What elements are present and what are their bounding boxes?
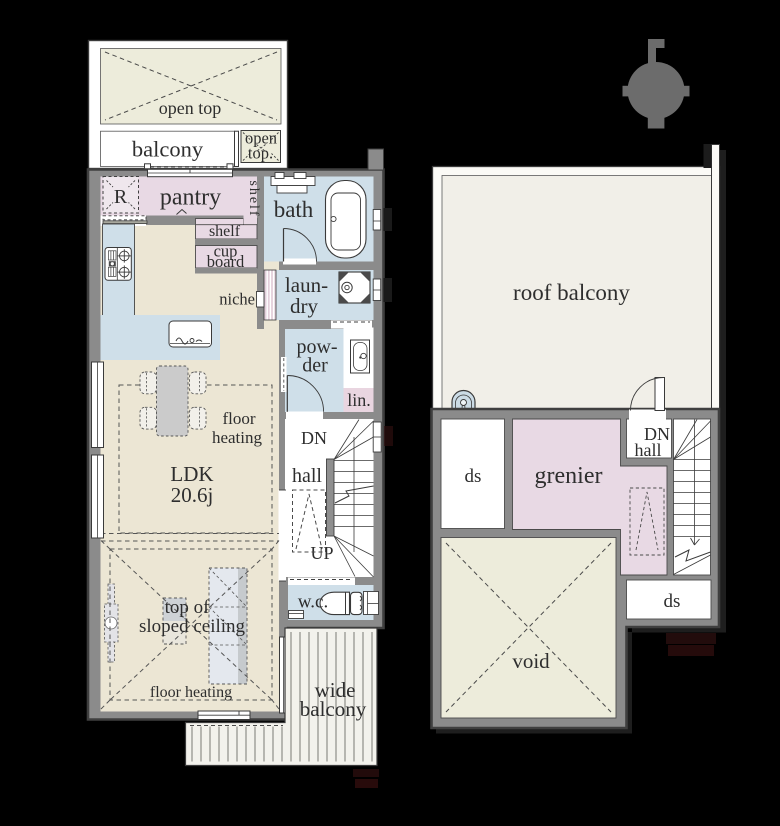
svg-text:balcony: balcony xyxy=(300,697,367,721)
svg-text:floor heating: floor heating xyxy=(150,684,232,701)
svg-text:top of: top of xyxy=(165,597,211,618)
svg-text:der: der xyxy=(302,355,328,377)
svg-text:void: void xyxy=(512,649,550,673)
svg-text:hall: hall xyxy=(635,440,662,460)
svg-text:lin.: lin. xyxy=(347,390,371,410)
svg-text:shelf: shelf xyxy=(209,223,241,240)
svg-text:grenier: grenier xyxy=(535,463,603,489)
svg-text:top.: top. xyxy=(248,144,273,163)
svg-text:shelf: shelf xyxy=(246,180,261,217)
svg-text:dry: dry xyxy=(290,294,318,318)
svg-text:UP: UP xyxy=(310,543,333,563)
svg-text:R: R xyxy=(114,186,128,208)
svg-text:roof balcony: roof balcony xyxy=(513,280,630,305)
svg-text:20.6j: 20.6j xyxy=(171,483,214,507)
svg-text:bath: bath xyxy=(274,197,314,222)
svg-text:balcony: balcony xyxy=(132,137,204,162)
svg-text:DN: DN xyxy=(301,428,327,448)
svg-text:ds: ds xyxy=(465,466,482,487)
svg-text:hall: hall xyxy=(292,465,322,487)
svg-text:heating: heating xyxy=(212,428,263,447)
svg-text:floor: floor xyxy=(222,409,255,428)
svg-text:ds: ds xyxy=(664,591,681,612)
svg-text:sloped ceiling: sloped ceiling xyxy=(139,616,246,637)
svg-text:pantry: pantry xyxy=(160,185,221,211)
svg-text:niche: niche xyxy=(219,290,255,309)
svg-text:open top: open top xyxy=(159,98,222,118)
svg-text:w.c.: w.c. xyxy=(298,592,328,613)
